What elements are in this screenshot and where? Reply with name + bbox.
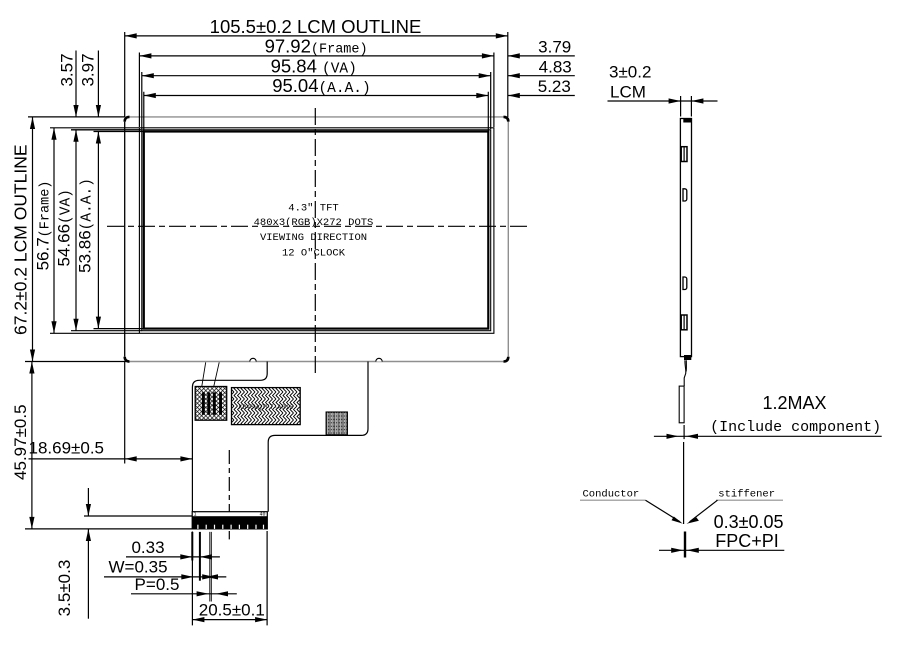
- svg-text:12 O″CLOCK: 12 O″CLOCK: [282, 247, 346, 259]
- svg-text:VIEWING DIRECTION: VIEWING DIRECTION: [260, 232, 367, 244]
- svg-text:1: 1: [194, 512, 197, 518]
- svg-text:W=0.35: W=0.35: [108, 558, 167, 577]
- svg-text:Conductor: Conductor: [583, 489, 640, 501]
- svg-text:20.5±0.1: 20.5±0.1: [199, 600, 265, 619]
- svg-text:45.97±0.5: 45.97±0.5: [11, 404, 30, 480]
- svg-text:0.3±0.05: 0.3±0.05: [714, 512, 784, 532]
- svg-text:stiffener: stiffener: [718, 489, 775, 501]
- svg-text:LCM: LCM: [610, 83, 646, 102]
- svg-text:1.2MAX: 1.2MAX: [762, 393, 826, 413]
- svg-text:3±0.2: 3±0.2: [609, 63, 651, 82]
- svg-text:4.83: 4.83: [539, 57, 572, 76]
- svg-text:5.23: 5.23: [538, 77, 571, 96]
- svg-text:KD43WQTFT-A016: KD43WQTFT-A016: [238, 404, 293, 411]
- svg-text:3.57: 3.57: [58, 53, 77, 86]
- svg-text:4.3″ TFT: 4.3″ TFT: [288, 203, 338, 215]
- svg-text:FPC+PI: FPC+PI: [715, 531, 779, 551]
- svg-text:18.69±0.5: 18.69±0.5: [29, 438, 105, 457]
- svg-text:67.2±0.2 LCM OUTLINE: 67.2±0.2 LCM OUTLINE: [11, 144, 31, 335]
- svg-text:480x3(RGB)X272 DOTS: 480x3(RGB)X272 DOTS: [254, 217, 374, 229]
- svg-text:P=0.5: P=0.5: [135, 575, 180, 594]
- svg-text:105.5±0.2 LCM OUTLINE: 105.5±0.2 LCM OUTLINE: [210, 16, 422, 37]
- svg-text:0.33: 0.33: [131, 538, 164, 557]
- svg-text:3.5±0.3: 3.5±0.3: [55, 560, 74, 617]
- svg-text:3.79: 3.79: [538, 37, 571, 56]
- svg-text:(Include component): (Include component): [710, 419, 881, 436]
- svg-text:3.97: 3.97: [79, 53, 98, 86]
- svg-text:40: 40: [260, 512, 266, 518]
